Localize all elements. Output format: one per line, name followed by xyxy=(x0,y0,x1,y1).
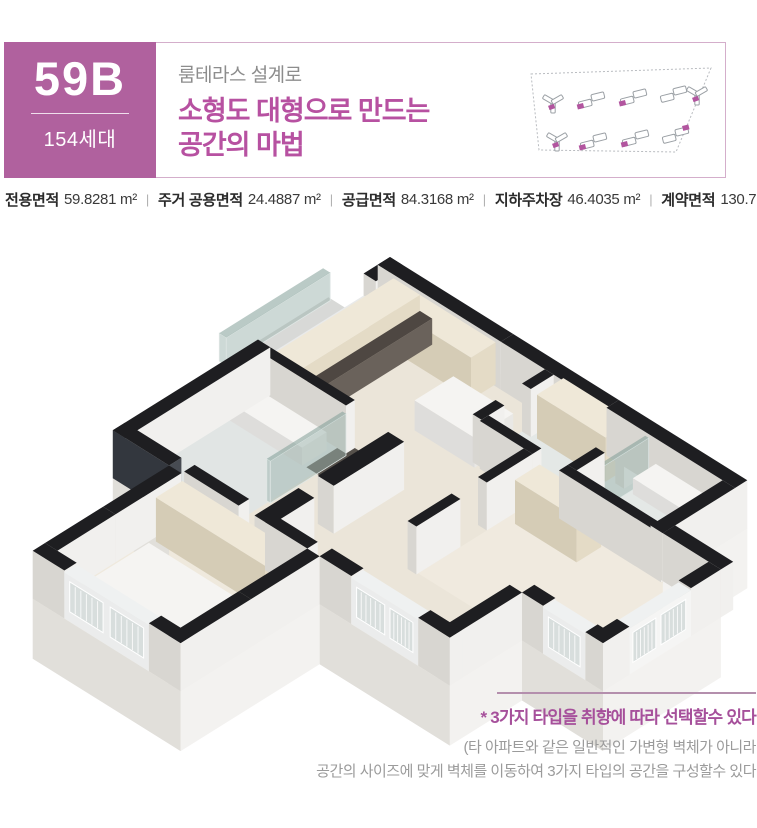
caption-highlight: * 3가지 타입을 취향에 따라 선택할수 있다 xyxy=(236,703,756,728)
spec-label: 계약면적 xyxy=(661,189,715,210)
header-title-block: 룸테라스 설계로 소형도 대형으로 만드는 공간의 마법 xyxy=(178,60,429,162)
unit-badge-divider xyxy=(31,113,129,114)
spec-label: 지하주차장 xyxy=(495,189,563,210)
caption-line1: (타 아파트와 같은 일반적인 가변형 벽체가 아니라 xyxy=(236,736,756,760)
area-specs: 전용면적59.8281 m²|주거 공용면적24.4887 m²|공급면적84.… xyxy=(5,189,757,210)
spec-separator: | xyxy=(146,192,149,207)
spec-value: 84.3168 m² xyxy=(401,191,474,208)
spec-separator: | xyxy=(330,192,333,207)
header-subtitle: 룸테라스 설계로 xyxy=(178,60,429,87)
spec-separator: | xyxy=(649,192,652,207)
spec-label: 주거 공용면적 xyxy=(158,189,243,210)
unit-count: 154세대 xyxy=(4,123,156,152)
header-title-line2: 공간의 마법 xyxy=(178,128,429,162)
caption-block: * 3가지 타입을 취향에 따라 선택할수 있다 (타 아파트와 같은 일반적인… xyxy=(236,692,756,784)
spec-label: 전용면적 xyxy=(5,189,59,210)
spec-separator: | xyxy=(483,192,486,207)
spec-value: 130.7204 m² xyxy=(720,191,757,208)
spec-label: 공급면적 xyxy=(342,189,396,210)
brochure-page: 59B 154세대 룸테라스 설계로 소형도 대형으로 만드는 공간의 마법 전… xyxy=(0,0,757,828)
caption-rule xyxy=(497,692,756,694)
spec-value: 24.4887 m² xyxy=(248,191,321,208)
site-plan-thumbnail xyxy=(527,64,713,158)
unit-code: 59B xyxy=(4,52,156,106)
header-title-line1: 소형도 대형으로 만드는 xyxy=(178,94,429,128)
caption-line2: 공간의 사이즈에 맞게 벽체를 이동하여 3가지 타입의 공간을 구성할수 있다 xyxy=(236,760,756,784)
unit-badge: 59B 154세대 xyxy=(4,42,156,178)
spec-value: 59.8281 m² xyxy=(64,191,137,208)
spec-value: 46.4035 m² xyxy=(567,191,640,208)
